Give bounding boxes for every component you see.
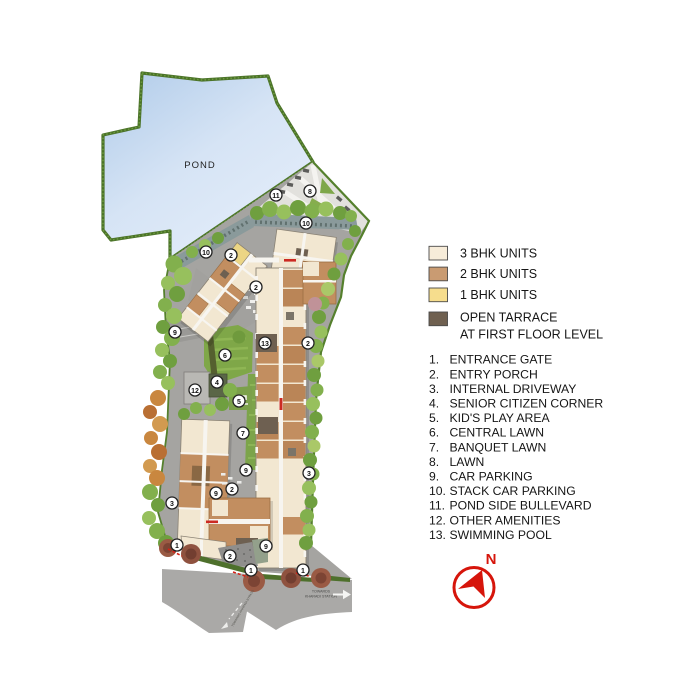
svg-text:5.: 5. (429, 411, 439, 425)
svg-text:3.: 3. (429, 382, 439, 396)
svg-text:2: 2 (230, 487, 234, 494)
svg-text:TOWARDS: TOWARDS (312, 590, 331, 594)
svg-text:2 BHK UNITS: 2 BHK UNITS (460, 267, 537, 281)
svg-text:CAR PARKING: CAR PARKING (450, 470, 533, 484)
svg-text:11: 11 (272, 193, 280, 200)
svg-text:1 BHK UNITS: 1 BHK UNITS (460, 288, 537, 302)
svg-text:8.: 8. (429, 455, 439, 469)
svg-text:2: 2 (229, 253, 233, 260)
svg-text:OTHER AMENITIES: OTHER AMENITIES (450, 513, 561, 527)
svg-text:ENTRY PORCH: ENTRY PORCH (450, 367, 538, 381)
svg-text:1: 1 (175, 543, 179, 550)
svg-text:9: 9 (214, 491, 218, 498)
svg-text:12: 12 (191, 388, 199, 395)
svg-text:3: 3 (307, 471, 311, 478)
svg-text:N: N (486, 551, 497, 568)
svg-text:2: 2 (306, 341, 310, 348)
svg-text:7: 7 (241, 431, 245, 438)
svg-text:SWIMMING POOL: SWIMMING POOL (450, 528, 552, 542)
svg-text:12.: 12. (429, 513, 446, 527)
svg-text:6: 6 (223, 353, 227, 360)
svg-text:POND SIDE BULLEVARD: POND SIDE BULLEVARD (450, 499, 592, 513)
svg-text:13: 13 (261, 341, 269, 348)
svg-text:13.: 13. (429, 528, 446, 542)
svg-text:2: 2 (254, 285, 258, 292)
svg-text:6.: 6. (429, 426, 439, 440)
svg-text:1.: 1. (429, 353, 439, 367)
svg-text:INTERNAL DRIVEWAY: INTERNAL DRIVEWAY (450, 382, 577, 396)
svg-text:SENIOR CITIZEN CORNER: SENIOR CITIZEN CORNER (450, 397, 604, 411)
svg-text:KID'S PLAY AREA: KID'S PLAY AREA (450, 411, 551, 425)
svg-text:ENTRANCE GATE: ENTRANCE GATE (450, 353, 553, 367)
svg-text:9: 9 (264, 544, 268, 551)
svg-text:8: 8 (308, 189, 312, 196)
svg-text:4.: 4. (429, 397, 439, 411)
svg-text:3: 3 (170, 501, 174, 508)
svg-text:1: 1 (301, 568, 305, 575)
svg-text:POND: POND (184, 160, 215, 171)
svg-text:9: 9 (173, 330, 177, 337)
svg-text:1: 1 (249, 568, 253, 575)
svg-text:9.: 9. (429, 470, 439, 484)
svg-text:2: 2 (228, 554, 232, 561)
svg-text:10: 10 (202, 250, 210, 257)
svg-text:9: 9 (244, 468, 248, 475)
svg-text:STACK CAR PARKING: STACK CAR PARKING (450, 484, 576, 498)
svg-text:AT FIRST FLOOR LEVEL: AT FIRST FLOOR LEVEL (460, 328, 603, 342)
svg-text:2.: 2. (429, 367, 439, 381)
svg-text:BANQUET LAWN: BANQUET LAWN (450, 440, 547, 454)
svg-text:7.: 7. (429, 440, 439, 454)
svg-text:LAWN: LAWN (450, 455, 485, 469)
svg-text:10: 10 (302, 221, 310, 228)
svg-text:11.: 11. (429, 499, 445, 513)
svg-text:10.: 10. (429, 484, 446, 498)
svg-text:KHARADI STATION: KHARADI STATION (305, 595, 337, 599)
svg-text:4: 4 (215, 380, 219, 387)
svg-text:5: 5 (237, 399, 241, 406)
svg-text:CENTRAL LAWN: CENTRAL LAWN (450, 426, 545, 440)
svg-text:OPEN TARRACE: OPEN TARRACE (460, 311, 557, 325)
svg-text:3 BHK UNITS: 3 BHK UNITS (460, 246, 537, 260)
